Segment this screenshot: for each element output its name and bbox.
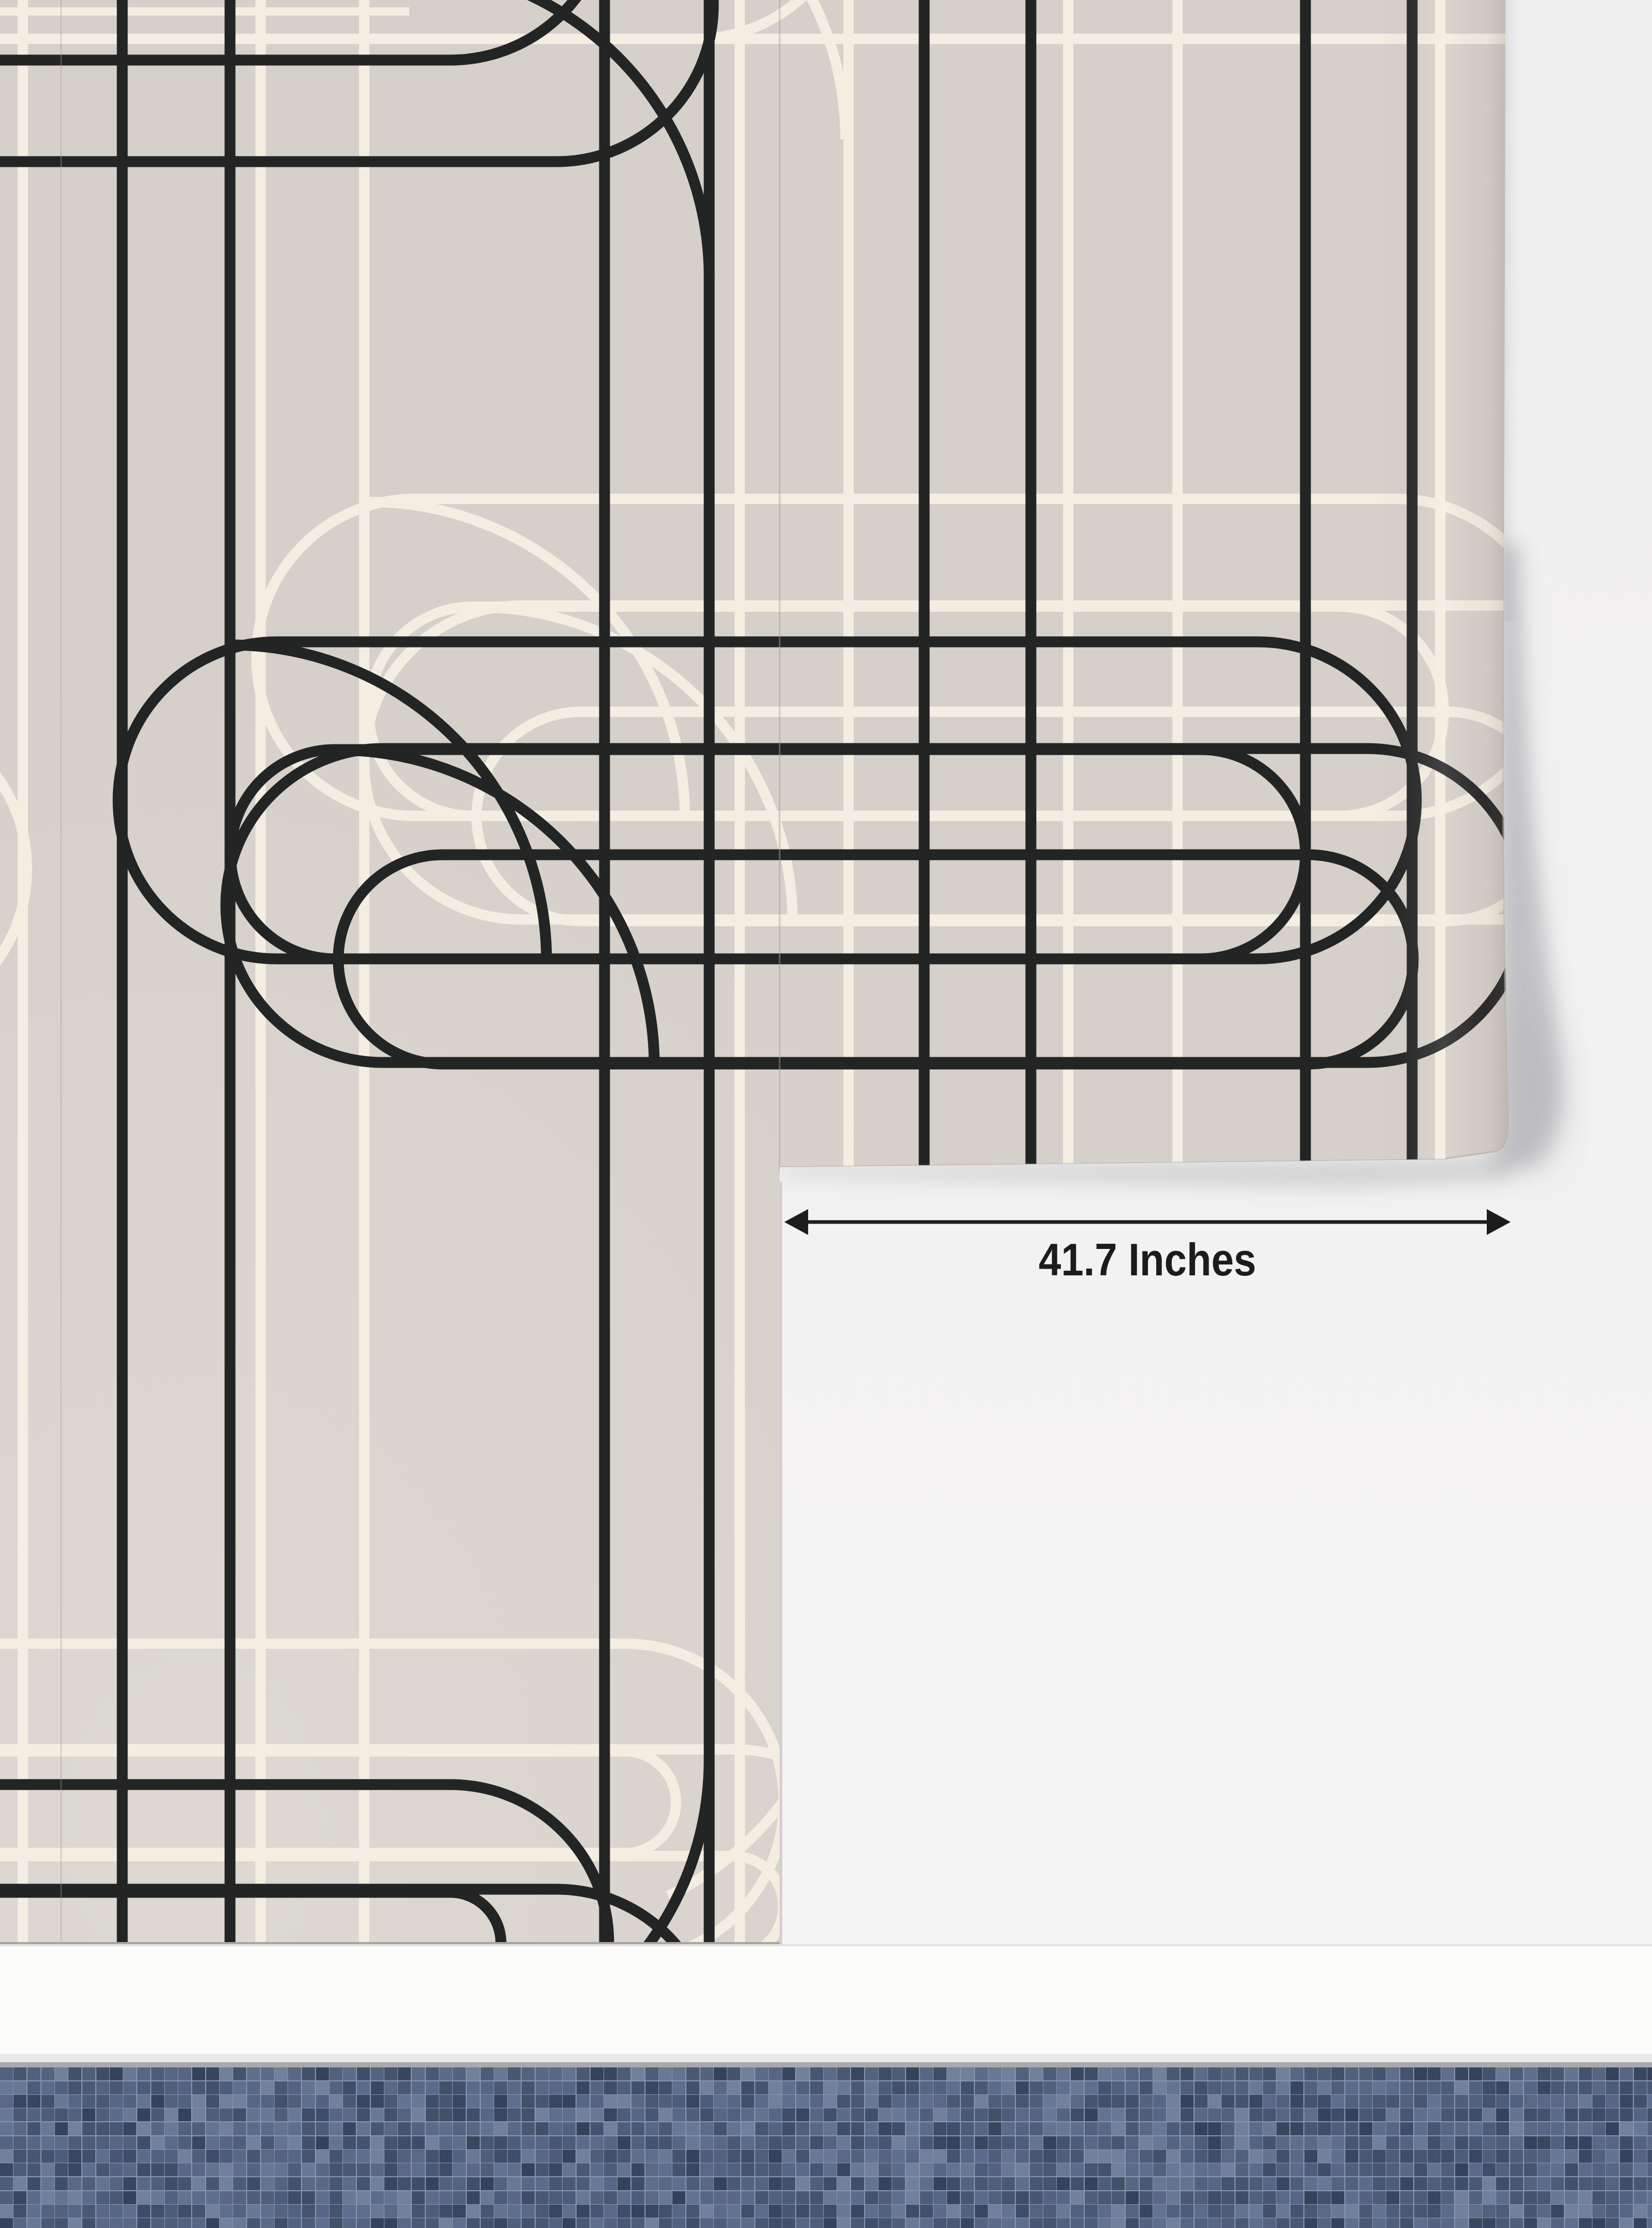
svg-text:41.7 Inches: 41.7 Inches bbox=[1039, 1234, 1256, 1285]
